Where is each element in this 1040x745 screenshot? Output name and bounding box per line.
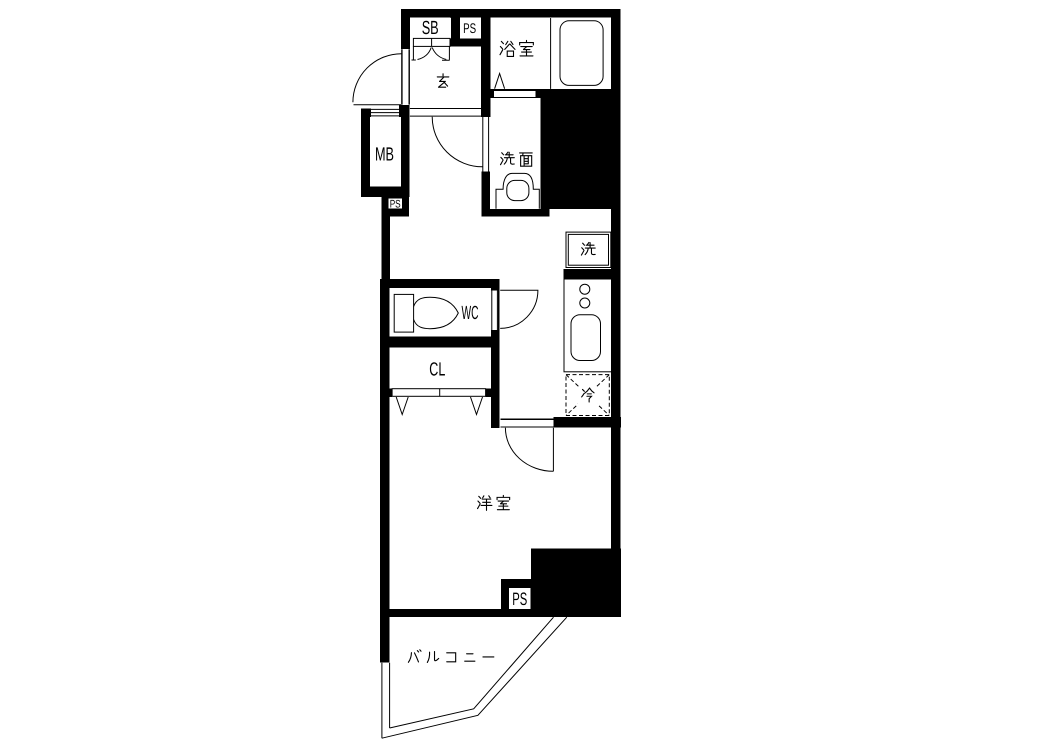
svg-text:SB: SB xyxy=(422,18,439,39)
svg-text:WC: WC xyxy=(462,303,479,324)
svg-text:MB: MB xyxy=(375,145,394,166)
svg-text:PS: PS xyxy=(512,589,527,609)
svg-text:PS: PS xyxy=(463,20,476,36)
svg-text:PS: PS xyxy=(390,199,401,211)
svg-text:CL: CL xyxy=(429,360,445,381)
